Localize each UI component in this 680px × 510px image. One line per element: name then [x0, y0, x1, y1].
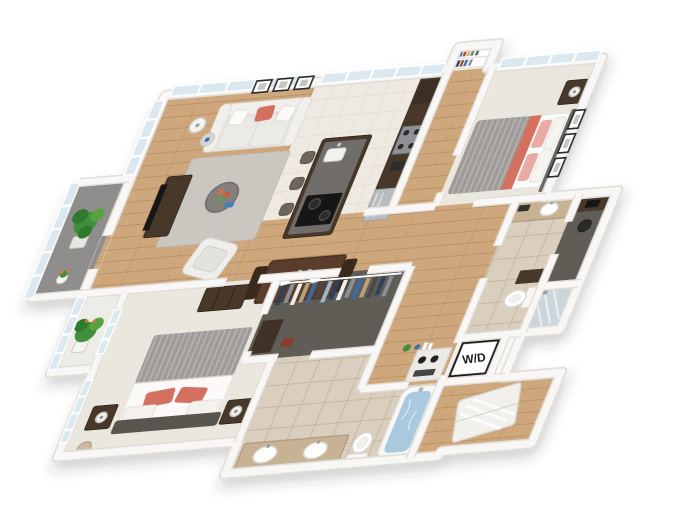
floorplan-svg: W/D — [0, 0, 680, 510]
floorplan-image: W/D — [0, 0, 680, 510]
floorplan — [0, 26, 680, 497]
wd-label: W/D — [462, 350, 487, 367]
